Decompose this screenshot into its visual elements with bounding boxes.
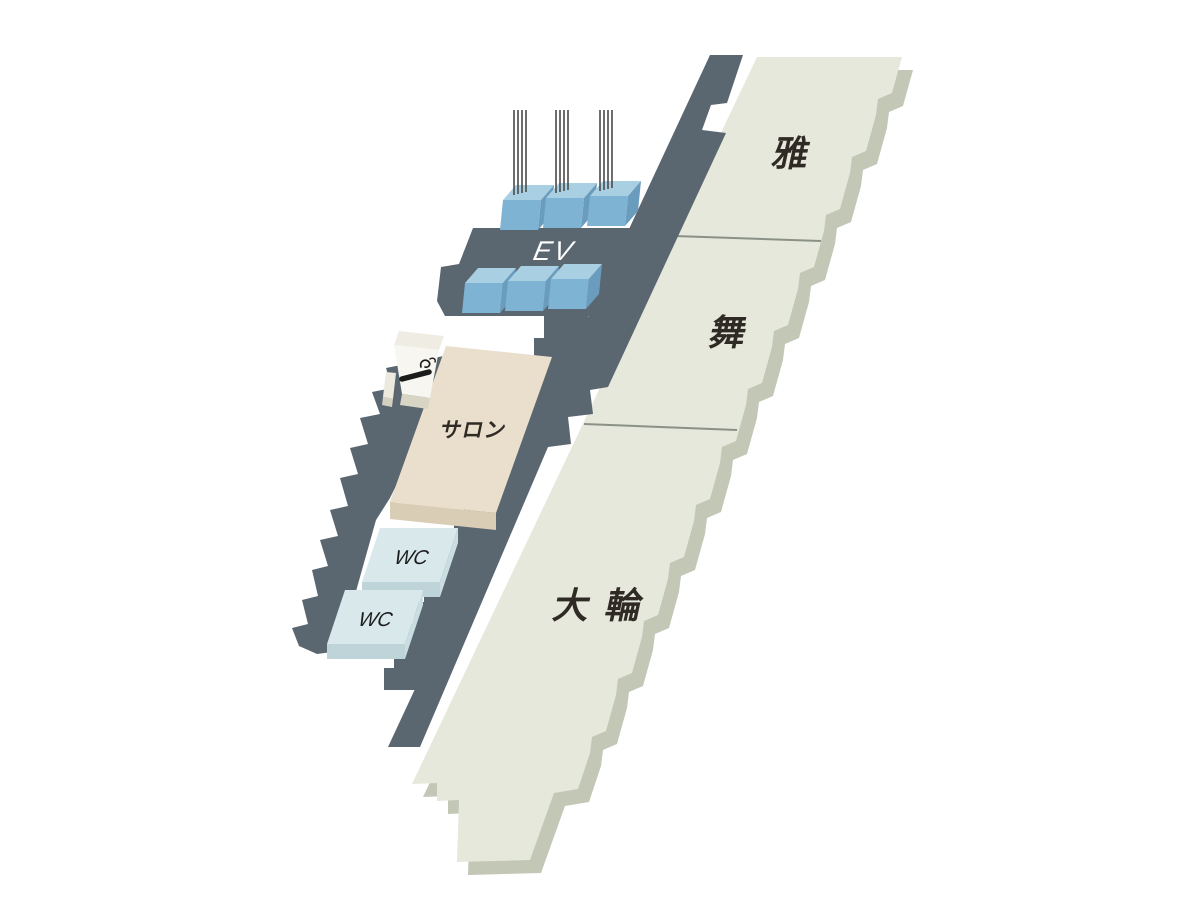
wc-lower-bottom-face <box>327 644 405 659</box>
room-dairin-label: 大 輪 <box>550 585 650 626</box>
wc-lower-label: WC <box>356 609 394 631</box>
elevator-hall-label: EV <box>531 235 578 266</box>
salon-label: サロン <box>438 419 509 442</box>
elevator-hall: EV <box>437 110 668 316</box>
elevator-cables <box>514 110 612 195</box>
floor-map-stage: 雅 舞 大 輪 EV <box>0 0 1200 924</box>
wc-upper-label: WC <box>392 547 430 569</box>
floor-map-canvas: 雅 舞 大 輪 EV <box>0 0 1200 924</box>
